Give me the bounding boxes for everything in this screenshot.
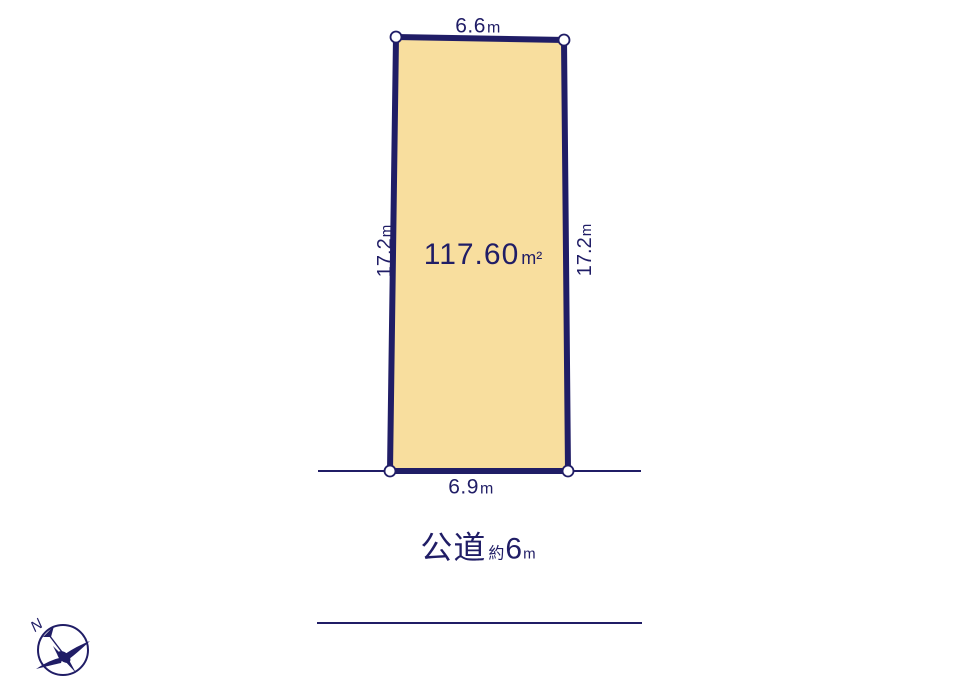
dimension-left-value: 17.2 — [375, 238, 395, 277]
dimension-top-value: 6.6 — [455, 16, 486, 37]
dimension-bottom-unit: m — [480, 482, 494, 498]
compass-bird-silhouette — [36, 641, 90, 673]
dimension-top-unit: m — [487, 21, 501, 37]
site-plan-canvas — [0, 0, 960, 680]
road-width-unit: m — [523, 547, 536, 562]
land-plot-diagram: 6.6m 17.2m 17.2m 117.60m² 6.9m 公道 約 6 m … — [0, 0, 960, 680]
dimension-left-unit: m — [379, 225, 394, 238]
road-approx-label: 約 — [488, 547, 504, 563]
compass-north-label: N — [27, 615, 46, 635]
dimension-bottom: 6.9m — [448, 477, 494, 498]
parcel-area-value: 117.60 — [424, 240, 520, 270]
dimension-right-unit: m — [579, 224, 594, 237]
dimension-right: 17.2m — [575, 224, 595, 276]
corner-marker-top-right — [559, 35, 570, 46]
road-type-label: 公道 — [420, 532, 486, 564]
corner-marker-bottom-right — [563, 466, 574, 477]
compass-north-icon: N — [23, 610, 103, 690]
parcel-area-label: 117.60m² — [424, 240, 543, 270]
compass-circle — [38, 625, 88, 675]
dimension-top: 6.6m — [455, 16, 501, 37]
corner-marker-bottom-left — [385, 466, 396, 477]
dimension-bottom-value: 6.9 — [448, 477, 479, 498]
parcel-area-unit: m² — [521, 249, 542, 267]
road-width-value: 6 — [505, 535, 522, 565]
road-annotation: 公道 約 6 m — [420, 532, 535, 565]
corner-marker-top-left — [391, 32, 402, 43]
dimension-left: 17.2m — [375, 225, 395, 277]
dimension-right-value: 17.2 — [575, 237, 595, 276]
